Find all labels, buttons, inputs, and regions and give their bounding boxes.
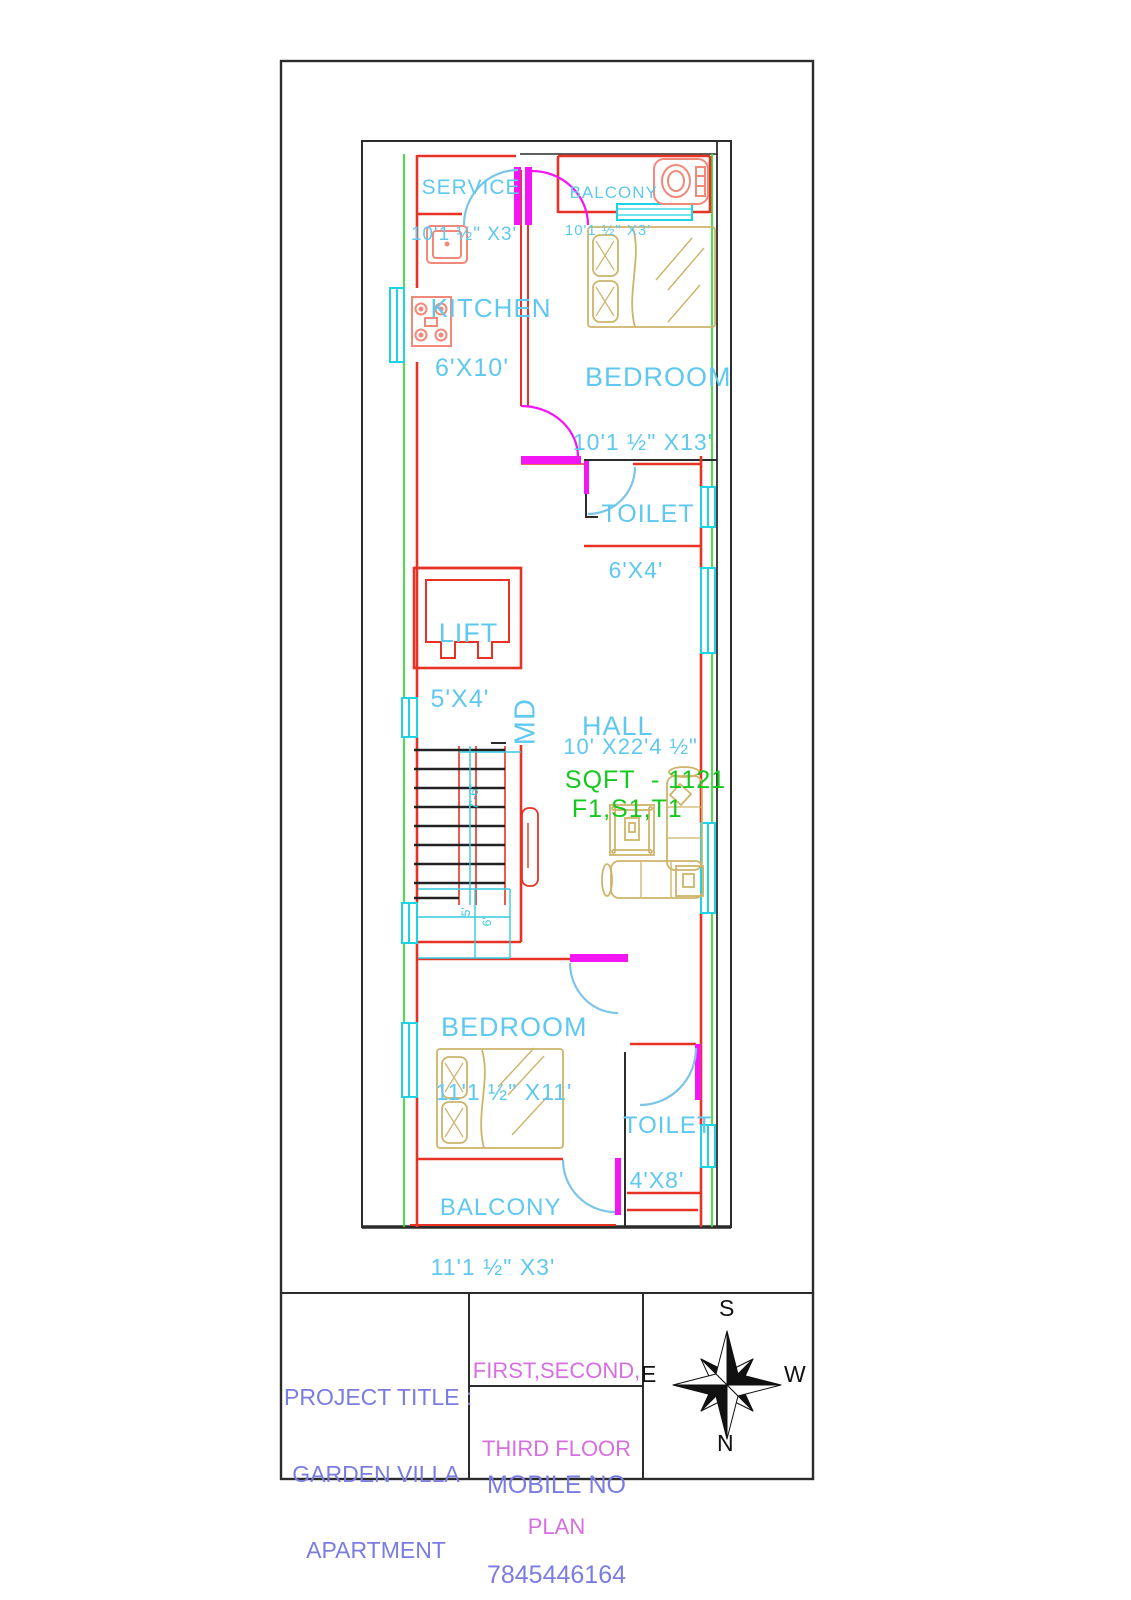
room-label-service: SERVICE 10'1 ½" X3' — [408, 152, 520, 270]
project-title-line1: PROJECT TITLE : — [284, 1385, 468, 1411]
room-name: KITCHEN — [430, 293, 551, 323]
compass-north-label: N — [717, 1430, 734, 1457]
project-title-line2: GARDEN VILLA — [284, 1462, 468, 1488]
compass-south-label: S — [719, 1295, 734, 1322]
room-label-toilet-bottom: TOILET 4'X8' — [608, 1084, 706, 1221]
room-dim: 11'1 ½" X3' — [414, 1253, 572, 1282]
hall-bottom-walls — [414, 942, 570, 959]
room-label-bedroom-top: BEDROOM 10'1 ½" X13' — [568, 327, 718, 491]
room-dim: 6'X4' — [586, 557, 686, 583]
room-dim: 11'1 ½" X11' — [424, 1078, 584, 1107]
room-dim: 10'1 ½" X3' — [552, 222, 664, 239]
room-label-balcony-bottom: BALCONY 11'1 ½" X3' — [414, 1163, 572, 1312]
room-name: BEDROOM — [441, 1012, 588, 1042]
room-name: BALCONY — [570, 183, 658, 202]
project-title-block: PROJECT TITLE : GARDEN VILLA APARTMENT S… — [284, 1334, 468, 1600]
floors-annotation: F1,S1,T1 — [556, 766, 756, 824]
compass-rose — [673, 1331, 781, 1439]
room-label-kitchen: KITCHEN 6'X10' — [414, 264, 530, 412]
landing-depth-dim: 6' — [466, 915, 494, 933]
room-name: BALCONY — [440, 1194, 562, 1221]
room-label-bedroom-bottom: BEDROOM 11'1 ½" X11' — [424, 977, 584, 1141]
project-title-line3: APARTMENT — [284, 1538, 468, 1564]
plan-name-line1: FIRST,SECOND, — [470, 1358, 643, 1384]
main-door-label: MD — [477, 703, 544, 763]
room-dim: 10'1 ½" X3' — [408, 224, 520, 246]
room-name: TOILET — [601, 500, 694, 528]
bedroom-bottom-threshold — [570, 954, 628, 962]
room-dim: 10'1 ½" X13' — [568, 428, 718, 457]
room-label-toilet-top: TOILET 6'X4' — [586, 471, 686, 612]
room-label-balcony-top: BALCONY 10'1 ½" X3' — [552, 163, 664, 258]
floor-plan-sheet: SERVICE 10'1 ½" X3' BALCONY 10'1 ½" X3' … — [0, 0, 1131, 1600]
compass-west-label: W — [784, 1361, 806, 1388]
mobile-label: MOBILE NO — [470, 1470, 643, 1500]
compass-east-label: E — [641, 1361, 656, 1388]
room-name: TOILET — [623, 1112, 713, 1139]
room-dim: 6'X10' — [414, 354, 530, 383]
room-name: SERVICE — [422, 176, 521, 199]
room-name: LIFT — [439, 618, 499, 648]
room-dim: 4'X8' — [608, 1167, 706, 1193]
stair-rise-dim: 7'-6" — [451, 777, 481, 817]
main-door-leaf — [522, 808, 538, 886]
mobile-block: MOBILE NO 7845446164 — [470, 1410, 643, 1600]
mobile-number: 7845446164 — [470, 1560, 643, 1590]
room-name: BEDROOM — [585, 362, 732, 392]
